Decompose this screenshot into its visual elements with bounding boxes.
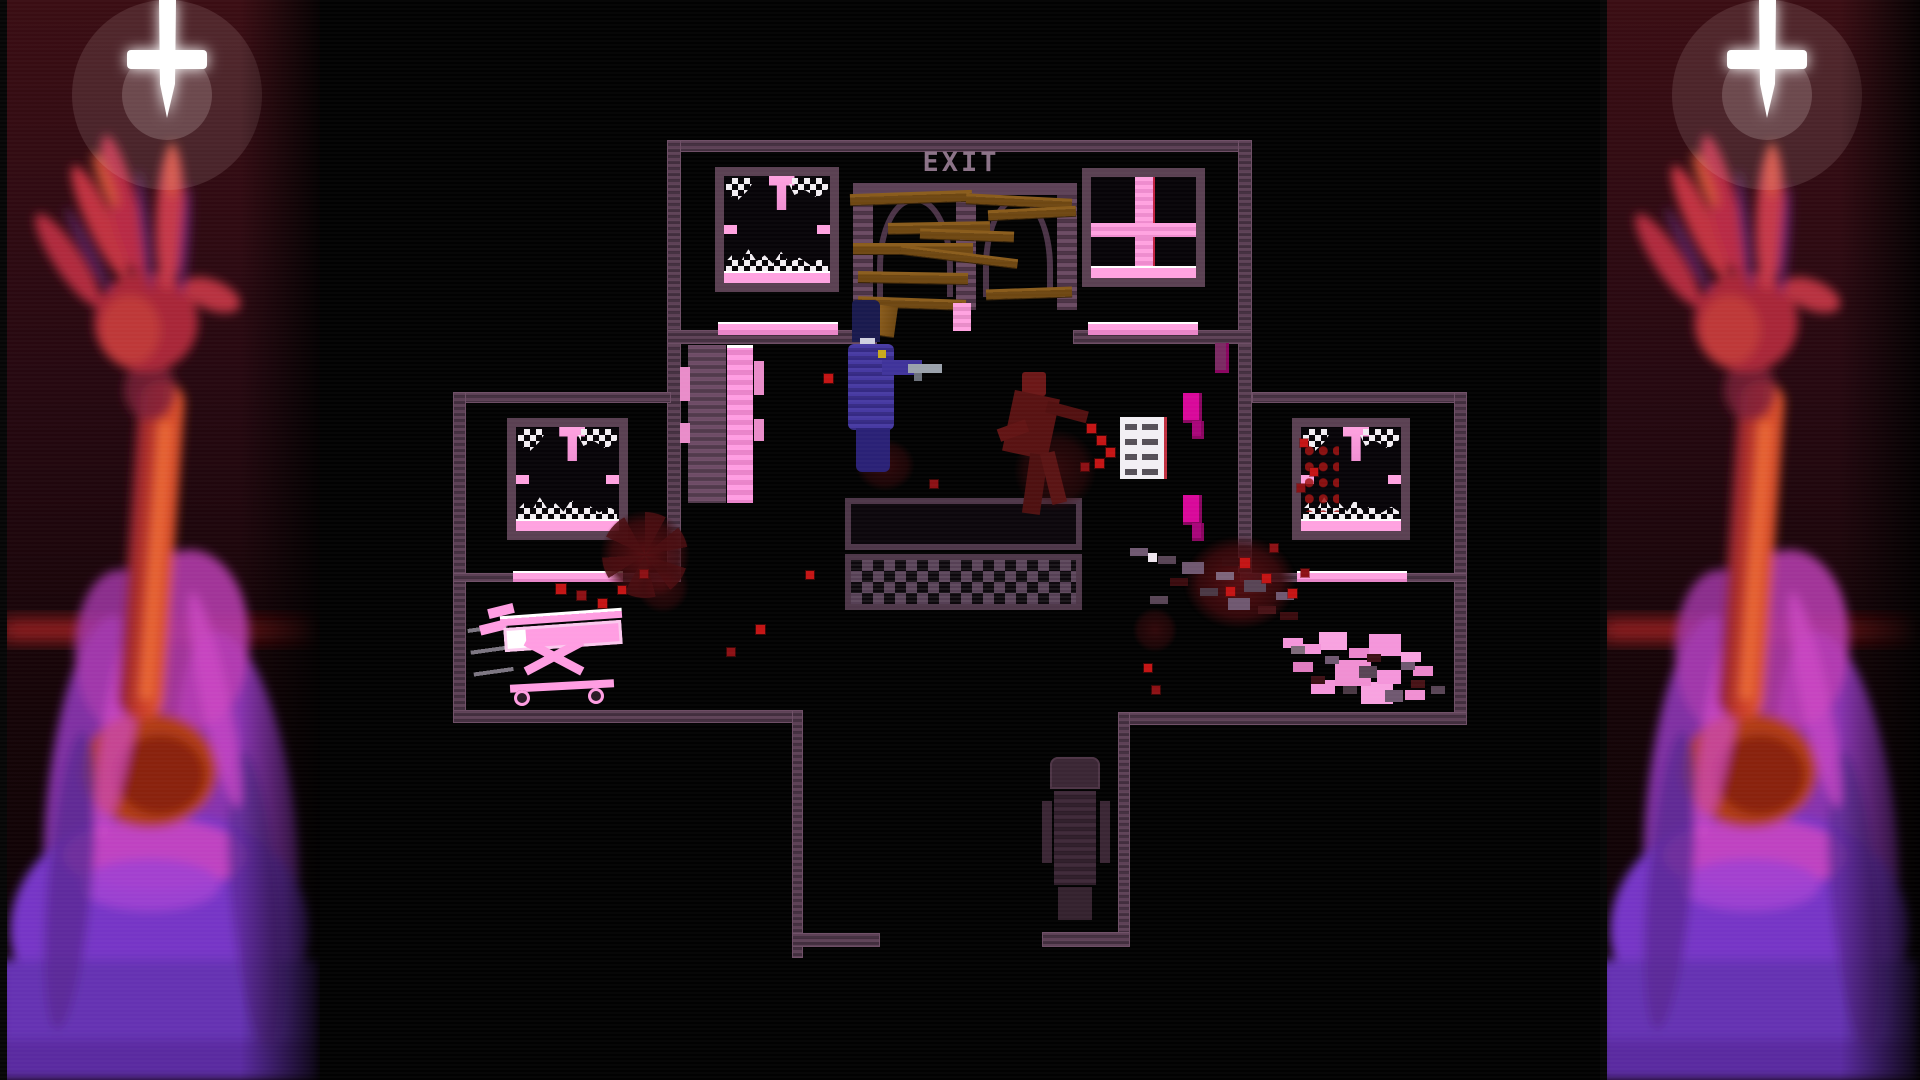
corridor-right-wall — [1118, 712, 1130, 947]
glass-shards-top-left — [726, 178, 756, 200]
window-top-left — [715, 167, 839, 292]
window-sill — [1091, 266, 1196, 278]
plank — [858, 271, 968, 284]
ledge-left — [724, 225, 737, 234]
blood-dot — [1152, 686, 1160, 694]
player-legs — [856, 428, 890, 472]
window-right-wing — [1292, 418, 1410, 540]
blood-dot — [1097, 436, 1106, 445]
blood-dot — [556, 584, 566, 594]
window-sill — [1301, 519, 1401, 531]
game-map[interactable]: EXIT — [0, 0, 1920, 1080]
corridor-left-wall — [792, 710, 803, 958]
pink-locker — [688, 345, 756, 503]
player-torso — [848, 344, 894, 430]
blood-dot — [640, 570, 648, 578]
game-screen: EXIT — [0, 0, 1920, 1080]
blood-dot — [806, 571, 814, 579]
chair-arm-right — [1100, 801, 1110, 863]
right-wing-right-wall — [1454, 392, 1467, 725]
chair-base — [1058, 887, 1092, 920]
glass-speck — [1148, 553, 1157, 562]
glass-shards-top-right — [1357, 429, 1399, 449]
window-sill — [724, 271, 830, 283]
chair-back — [1050, 757, 1100, 789]
blood-dot — [618, 586, 626, 594]
corpse — [998, 372, 1090, 517]
interior-sill-right — [1088, 322, 1198, 335]
blood-dot — [1300, 439, 1308, 447]
glass-shards-bottom — [726, 248, 828, 272]
blood-dot — [824, 374, 833, 383]
player-hair — [852, 300, 880, 342]
locker-tab-right-top — [754, 361, 764, 395]
gurney-wheel-right — [588, 688, 604, 704]
office-chair — [1042, 757, 1110, 920]
locker-tab-right-bottom — [754, 419, 764, 441]
blood-dot — [756, 625, 765, 634]
left-wing-top-wall — [453, 392, 671, 403]
glass-shards-top-right — [575, 429, 617, 449]
blood-dot — [1226, 587, 1235, 596]
ledge-right — [606, 475, 619, 484]
wall-fixture-top — [1183, 393, 1202, 423]
locker-panel — [727, 345, 753, 503]
blood-dot — [1095, 459, 1104, 468]
player-badge — [878, 350, 886, 358]
blood-dot — [1106, 448, 1115, 457]
wall-fixture-top-tab — [1192, 421, 1204, 439]
bottom-wall-left — [453, 710, 803, 723]
chair-body — [1054, 791, 1096, 885]
left-wing-left-wall — [453, 392, 466, 723]
blood-dot — [1262, 574, 1271, 583]
ledge-right — [817, 225, 830, 234]
blood-dot — [1270, 544, 1278, 552]
blood-dot — [1301, 569, 1309, 577]
glass-shards-top-left — [518, 429, 548, 451]
blood-dot — [930, 480, 938, 488]
locker-body — [688, 345, 726, 503]
player-character — [846, 300, 942, 472]
wall-fixture-bottom — [1183, 495, 1202, 525]
window-cross-horizontal — [1091, 223, 1196, 237]
chair-arm-left — [1042, 801, 1052, 863]
locker-tab-left-top — [680, 367, 690, 401]
locker-tab-left-bottom — [680, 423, 690, 443]
gurney-wheel-left — [514, 690, 530, 706]
player-gun — [908, 364, 942, 373]
gurney — [470, 598, 640, 708]
desk-checker-front — [845, 554, 1082, 610]
notice-panel — [1120, 417, 1164, 479]
building-right-wall — [1238, 140, 1252, 573]
blood-dot — [1288, 589, 1297, 598]
corridor-right-end-wall — [1042, 932, 1130, 947]
blood-dot — [1297, 484, 1305, 492]
corridor-left-end-wall — [792, 933, 880, 947]
debris-trail — [1130, 548, 1310, 643]
ledge-left — [516, 475, 529, 484]
blood-specks — [1305, 446, 1339, 513]
exit-sign: EXIT — [916, 148, 1006, 180]
blood-dot — [1240, 558, 1250, 568]
blood-dot — [1310, 468, 1318, 476]
right-wing-top-wall — [1252, 392, 1467, 403]
ledge-right — [1388, 475, 1401, 484]
door-jamb — [953, 303, 971, 331]
glass-shards-top-right — [786, 178, 828, 198]
interior-sill-left — [718, 322, 838, 335]
blood-dot — [1144, 664, 1152, 672]
blood-dot — [727, 648, 735, 656]
window-top-right — [1082, 168, 1205, 287]
wrecked-gurney — [1283, 638, 1445, 716]
wall-fixture-upper — [1215, 343, 1229, 373]
